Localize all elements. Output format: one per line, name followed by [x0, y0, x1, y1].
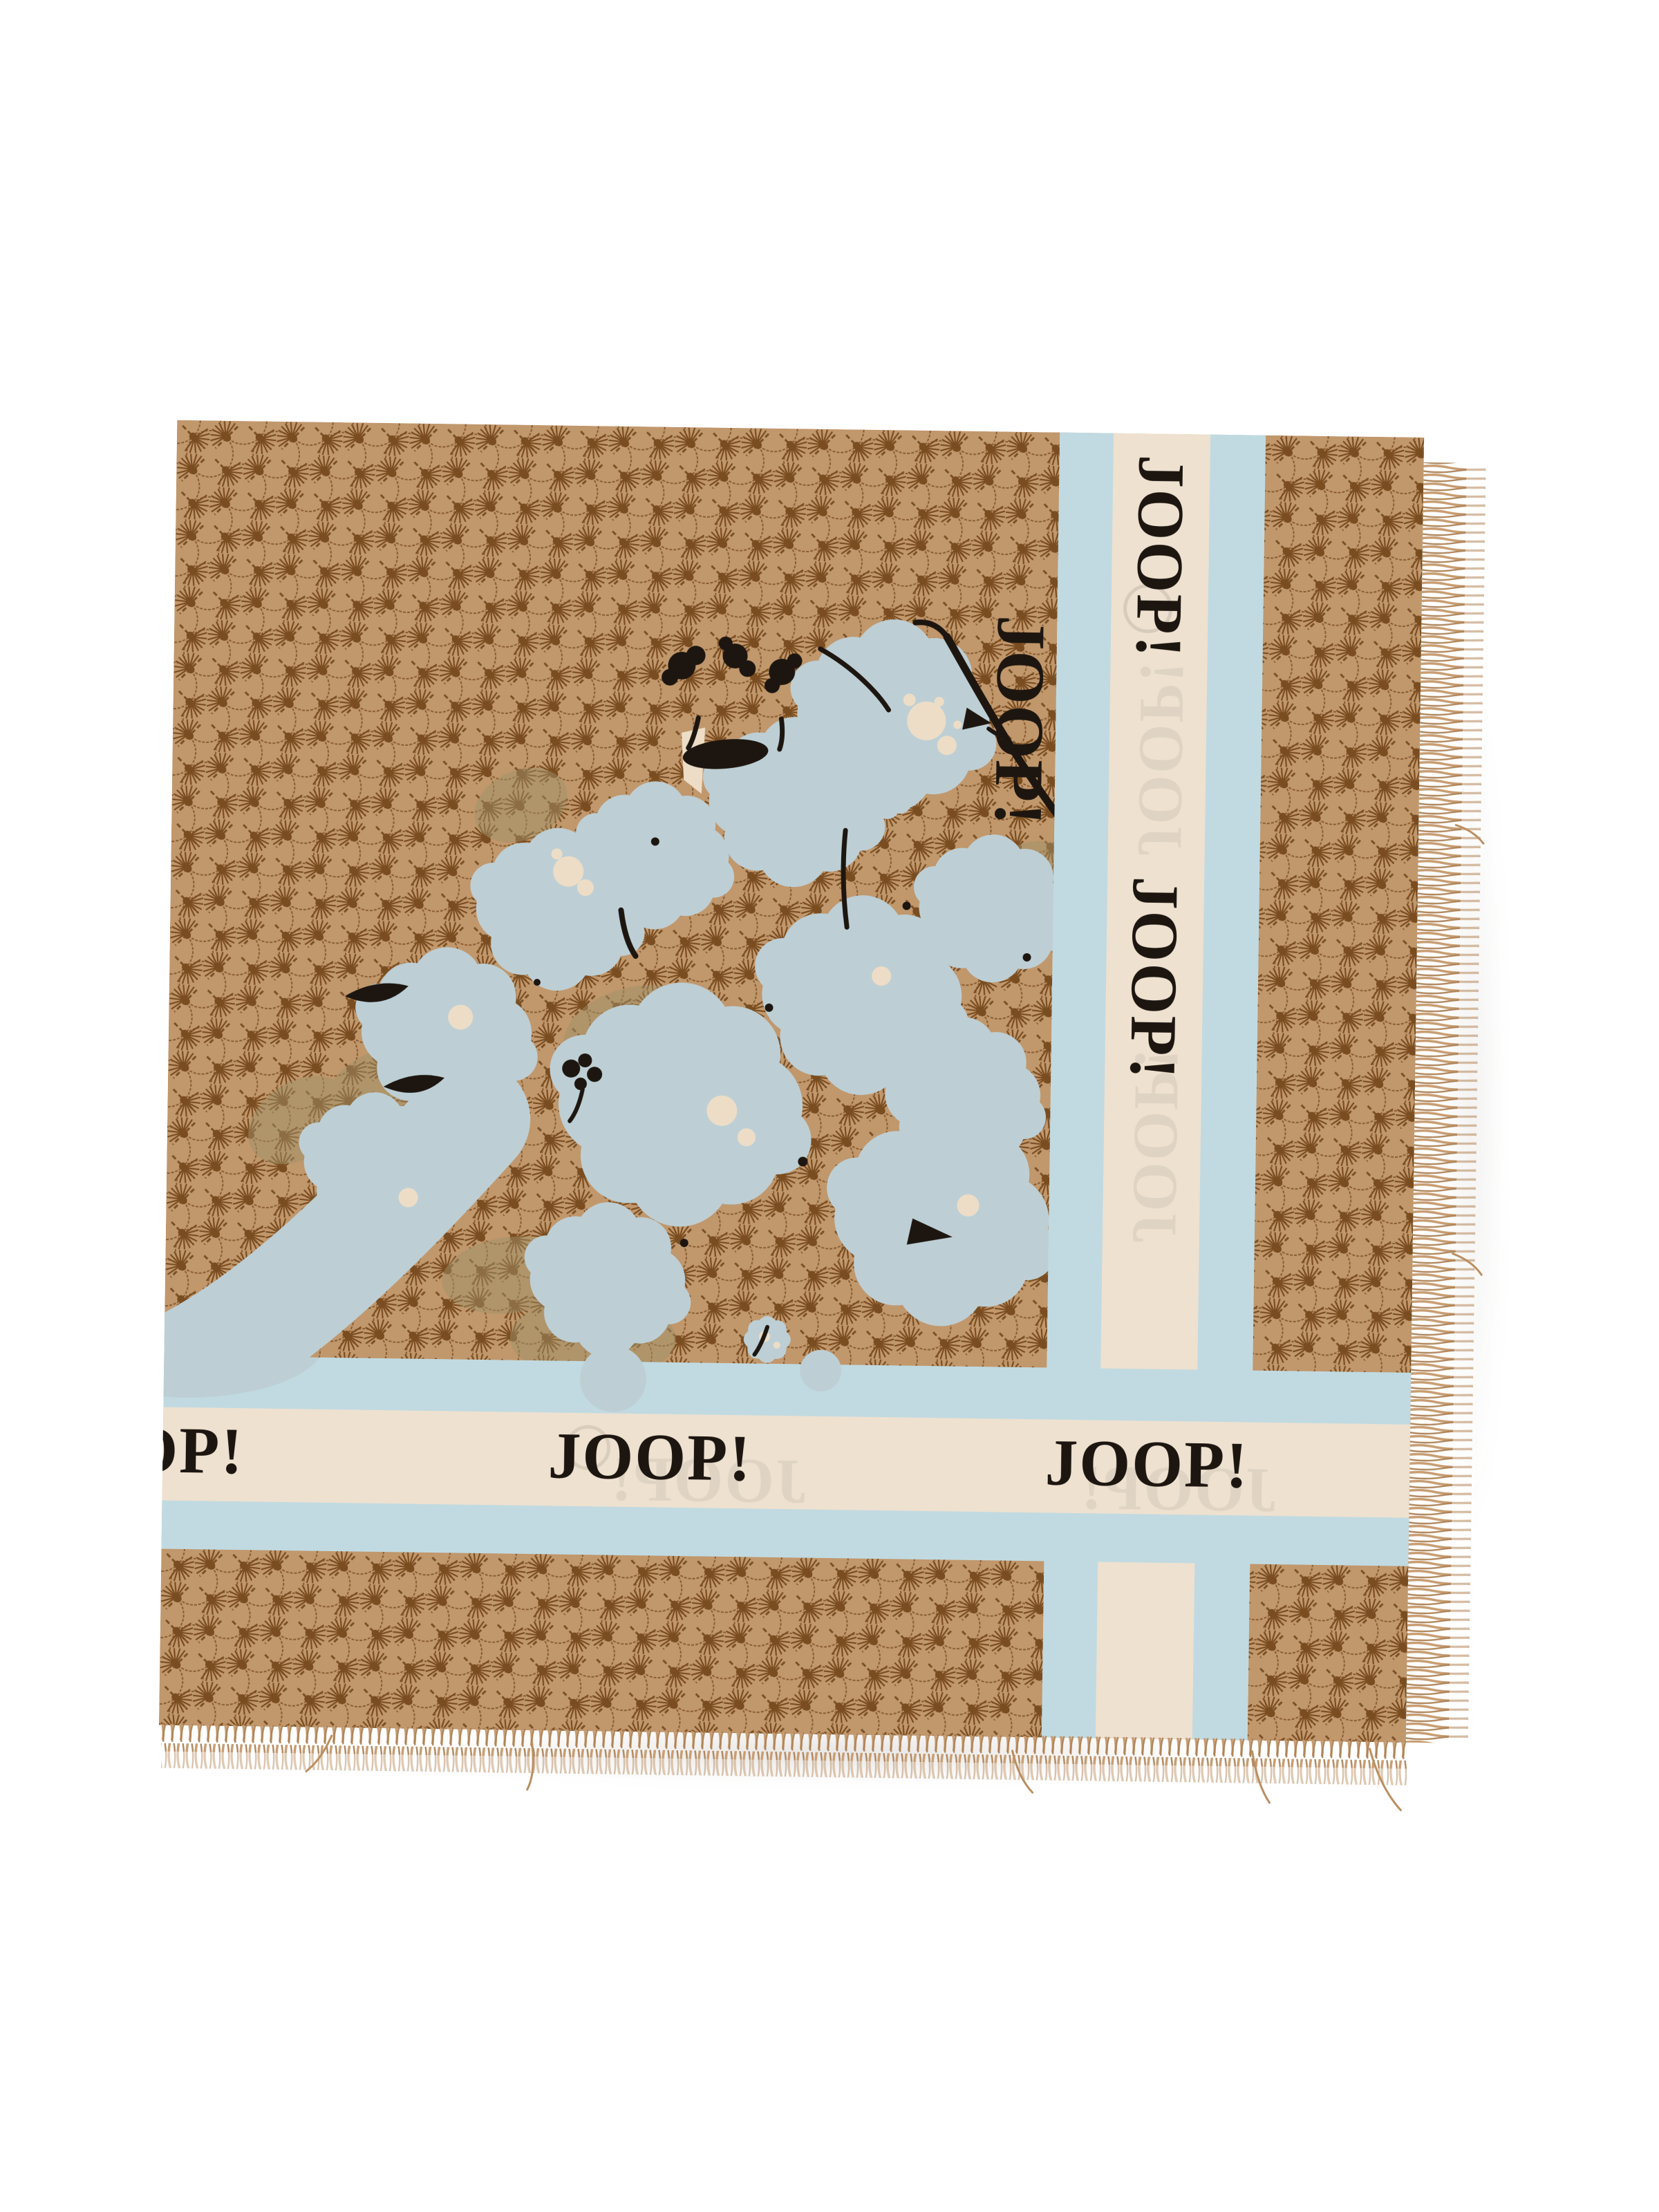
product-photo: JOOP! JOOP! JOOP! JOOP! JOOP! JOOP! JOOP…: [0, 0, 1659, 2212]
scarf: JOOP! JOOP! JOOP! JOOP! JOOP! JOOP! JOOP…: [158, 420, 1497, 1821]
fabric-shading: [159, 420, 1424, 1743]
